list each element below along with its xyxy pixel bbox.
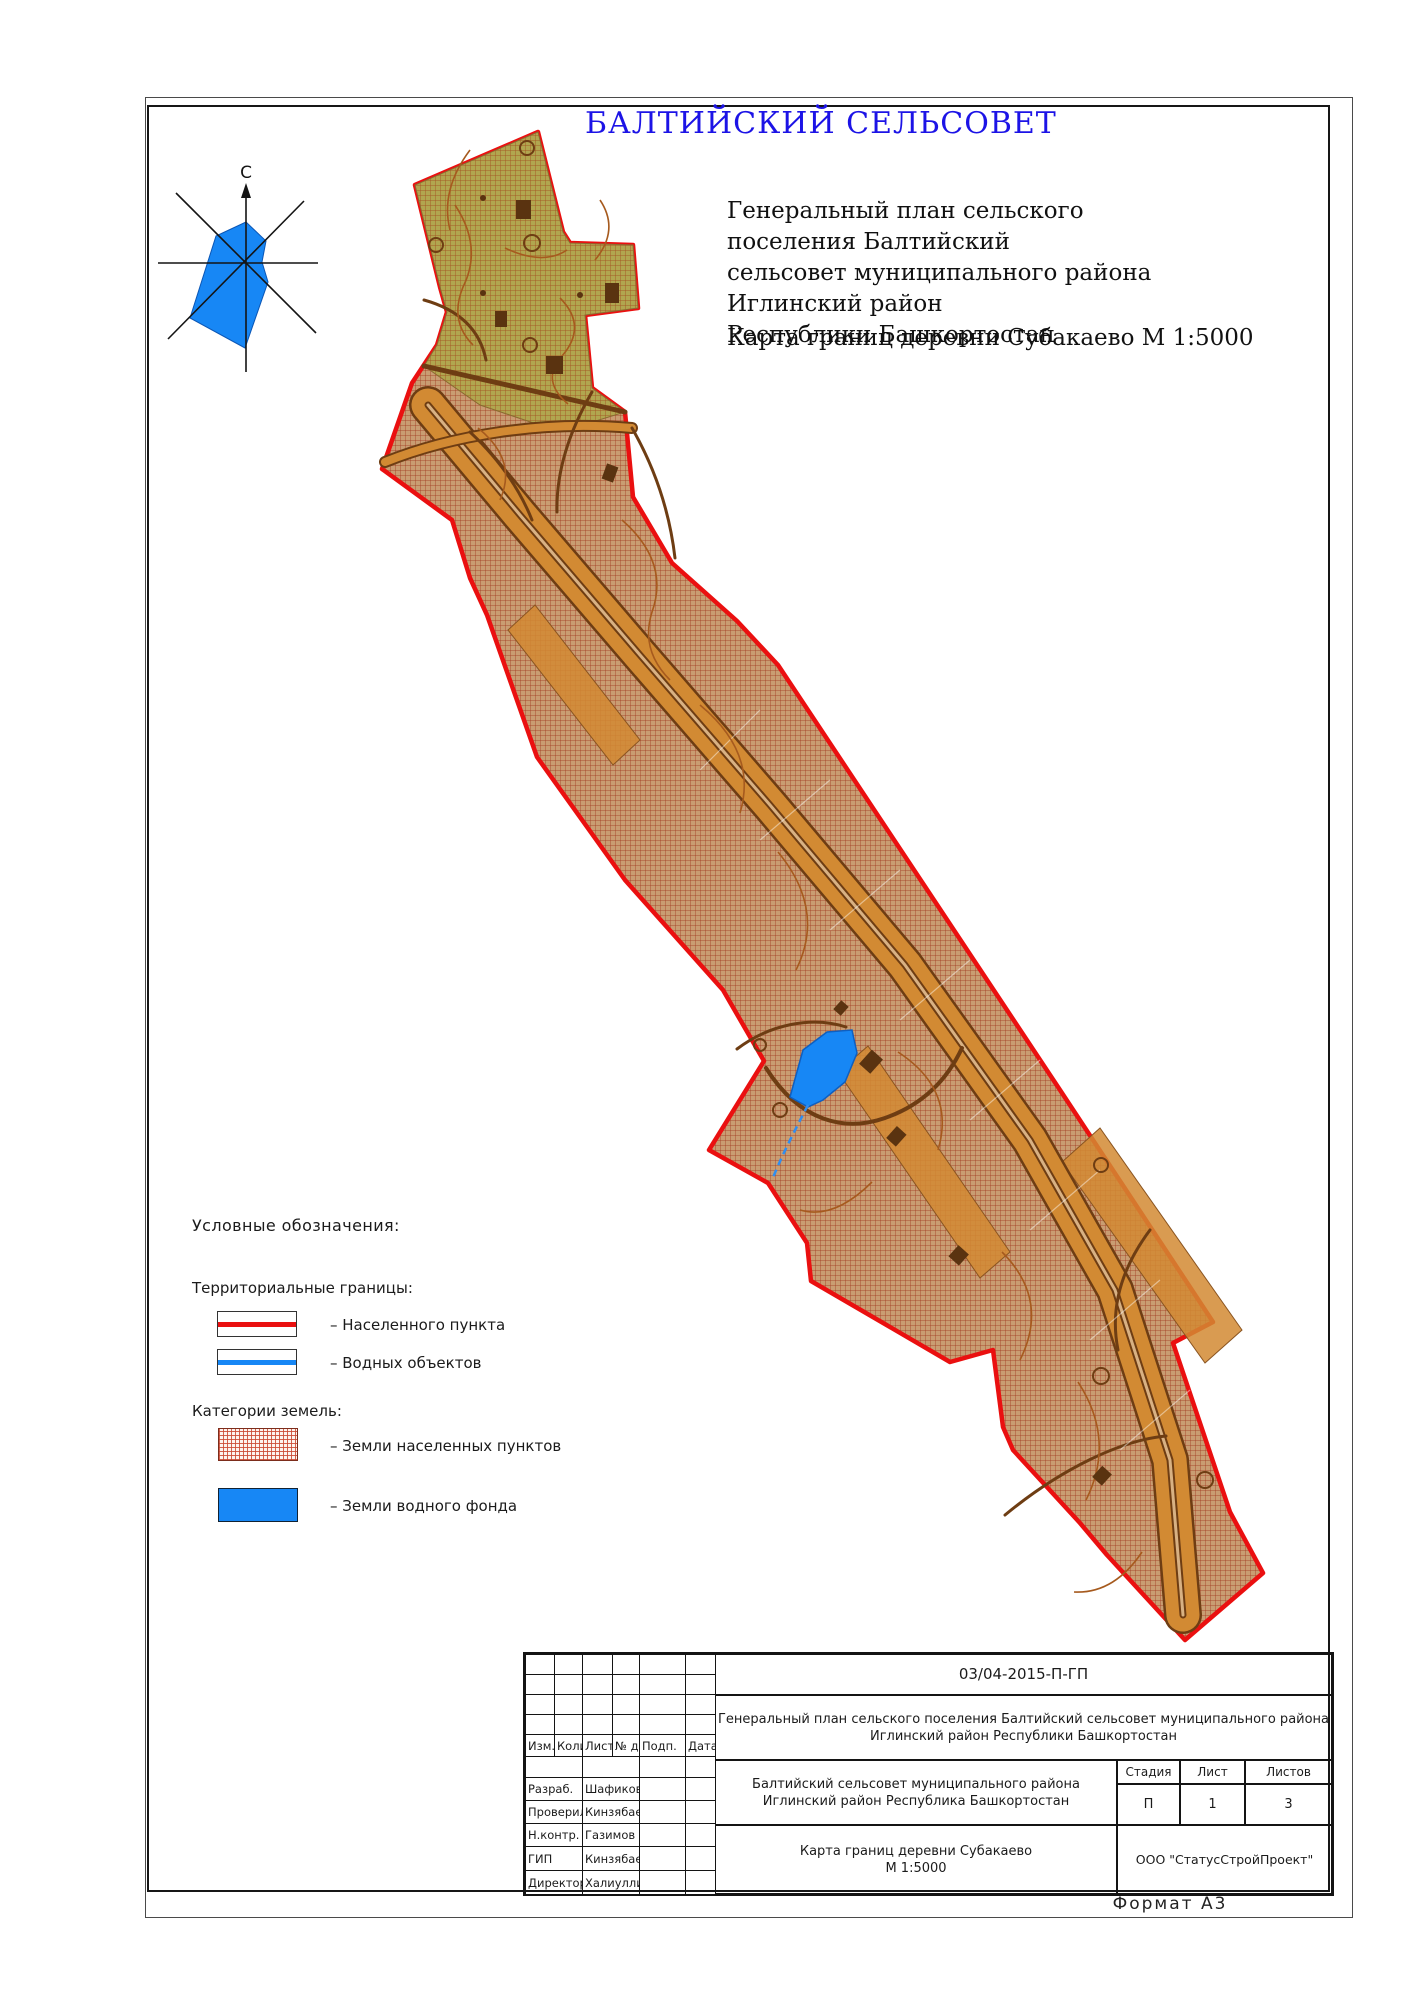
role-name: Кинзябаев	[583, 1801, 640, 1824]
legend-swatch-settlement-boundary	[217, 1311, 297, 1337]
legend-swatch-water-fund-lands	[218, 1488, 298, 1522]
role-label: Проверил	[526, 1801, 583, 1824]
sheet-value-cell: 1	[1180, 1784, 1245, 1825]
col-list: Лист	[583, 1735, 613, 1757]
format-label: Формат А3	[1075, 1894, 1265, 1914]
legend-swatch-settlement-lands	[218, 1428, 298, 1461]
subtitle-line-1: Генеральный план сельского поселения Бал…	[727, 196, 1197, 258]
col-data: Дата	[686, 1735, 716, 1757]
sheet: С БАЛТИЙСКИЙ СЕЛЬСОВЕТ Генеральный план …	[0, 0, 1414, 2000]
red-boundary-line	[218, 1322, 296, 1327]
legend-label-water-fund-lands: – Земли водного фонда	[330, 1497, 517, 1515]
project-name-cell: Генеральный план сельского поселения Бал…	[715, 1695, 1332, 1760]
col-podp: Подп.	[640, 1735, 686, 1757]
role-name: Халиуллин	[583, 1871, 640, 1895]
compass-needle	[190, 222, 268, 348]
sheets-value-cell: 3	[1245, 1784, 1332, 1825]
page-title: БАЛТИЙСКИЙ СЕЛЬСОВЕТ	[585, 106, 1057, 141]
company-cell: ООО "СтатусСтройПроект"	[1117, 1825, 1332, 1894]
col-izm: Изм.	[526, 1735, 555, 1757]
sheet-title-line-1: Карта границ деревни Субакаево	[800, 1843, 1032, 1860]
project-name-line-1: Генеральный план сельского поселения Бал…	[718, 1711, 1329, 1728]
object-name-cell: Балтийский сельсовет муниципального райо…	[715, 1760, 1117, 1825]
compass-north-label: С	[240, 163, 252, 183]
stage-value-cell: П	[1117, 1784, 1180, 1825]
sheets-header-cell: Листов	[1245, 1760, 1332, 1784]
legend-territorial-heading: Территориальные границы:	[192, 1279, 413, 1297]
project-name-line-2: Иглинский район Республики Башкортостан	[870, 1728, 1177, 1745]
doc-number-cell: 03/04-2015-П-ГП	[715, 1654, 1332, 1695]
object-name-line-2: Иглинский район Республика Башкортостан	[763, 1793, 1070, 1810]
role-name: Газимов	[583, 1824, 640, 1847]
role-label: Н.контр.	[526, 1824, 583, 1847]
sheet-header-cell: Лист	[1180, 1760, 1245, 1784]
col-ndok: № док	[613, 1735, 640, 1757]
object-name-line-1: Балтийский сельсовет муниципального райо…	[752, 1776, 1080, 1793]
legend-heading: Условные обозначения:	[192, 1216, 400, 1235]
legend-swatch-water-boundary	[217, 1349, 297, 1375]
title-block: Изм. Колич. Лист № док Подп. Дата Разраб…	[523, 1652, 1334, 1896]
role-name: Кинзябаев	[583, 1847, 640, 1871]
col-kolich: Колич.	[555, 1735, 583, 1757]
compass-arrowhead	[241, 183, 251, 198]
subtitle-line-2: сельсовет муниципального района Иглински…	[727, 258, 1197, 320]
legend-label-settlement-boundary: – Населенного пункта	[330, 1316, 505, 1334]
role-name: Шафиков	[583, 1778, 640, 1801]
compass-rose: С	[0, 0, 400, 450]
role-label: Разраб.	[526, 1778, 583, 1801]
role-label: ГИП	[526, 1847, 583, 1871]
legend-label-settlement-lands: – Земли населенных пунктов	[330, 1437, 561, 1455]
legend-label-water-boundary: – Водных объектов	[330, 1354, 481, 1372]
map-caption: Карта границ деревни Субакаево М 1:5000	[727, 325, 1254, 351]
legend-categories-heading: Категории земель:	[192, 1402, 342, 1420]
sheet-title-line-2: М 1:5000	[885, 1860, 946, 1877]
blue-boundary-line	[218, 1360, 296, 1365]
sheet-title-cell: Карта границ деревни Субакаево М 1:5000	[715, 1825, 1117, 1894]
stage-header-cell: Стадия	[1117, 1760, 1180, 1784]
title-block-left-table: Изм. Колич. Лист № док Подп. Дата Разраб…	[525, 1654, 716, 1895]
role-label: Директор	[526, 1871, 583, 1895]
